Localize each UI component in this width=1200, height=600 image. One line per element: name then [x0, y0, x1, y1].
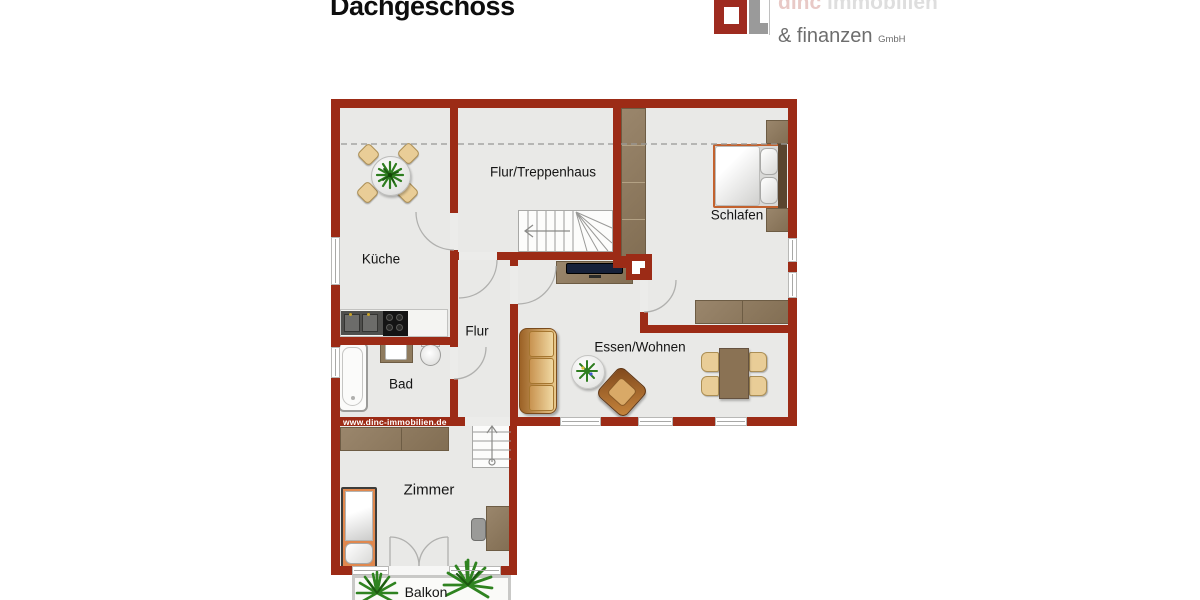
- room-label-balkon: Balkon: [405, 584, 448, 600]
- wall: [673, 417, 715, 426]
- wardrobe-divider: [622, 219, 645, 220]
- sofa-cushion: [529, 385, 554, 411]
- bed-pillow: [760, 177, 778, 204]
- wall: [340, 566, 352, 575]
- wall: [501, 566, 517, 575]
- tv-stand: [589, 275, 601, 278]
- page-title: Dachgeschoss: [330, 0, 515, 20]
- logo-finanzen: & finanzen: [778, 25, 873, 47]
- logo-line2: & finanzen GmbH: [778, 25, 906, 48]
- window: [331, 347, 340, 378]
- wall: [613, 108, 621, 258]
- stairs-treppenhaus: [518, 210, 613, 252]
- bed-single-pillow: [345, 543, 373, 564]
- room-label-schlafen: Schlafen: [711, 208, 764, 223]
- logo-gmbh: GmbH: [878, 34, 905, 45]
- stove-burner: [396, 324, 403, 331]
- sink-basin: [344, 314, 360, 332]
- wall: [497, 252, 621, 260]
- wall: [788, 262, 797, 272]
- logo-mark-gray-l-foot: [749, 23, 768, 34]
- bed-single-mattress: [345, 491, 373, 541]
- balcony-door-opening: [389, 566, 449, 575]
- wall: [601, 417, 638, 426]
- sofa-cushion: [529, 331, 554, 357]
- logo-mark-counter: [724, 7, 739, 24]
- window: [715, 417, 747, 426]
- wall: [510, 417, 560, 426]
- floorplan-canvas: Dachgeschoss dinc immobilien & finanzen …: [0, 0, 1200, 600]
- room-label-flur: Flur: [465, 324, 488, 339]
- armchair-seat: [606, 376, 637, 407]
- bathtub-drain: [351, 396, 355, 400]
- stove-burner: [396, 314, 403, 321]
- wall: [340, 337, 458, 345]
- door-opening: [640, 280, 648, 312]
- room-label-bad: Bad: [389, 377, 413, 392]
- room-label-essen-wohnen: Essen/Wohnen: [594, 340, 685, 355]
- door-opening: [450, 213, 458, 250]
- wall: [331, 99, 797, 108]
- window: [352, 566, 389, 575]
- sofa-cushion: [529, 358, 554, 384]
- stairwell-opening: [465, 417, 510, 426]
- room-label-kueche: Küche: [362, 252, 400, 267]
- desk: [486, 506, 511, 551]
- desk-chair: [471, 518, 486, 541]
- lowboard-divider: [742, 301, 743, 323]
- wall: [640, 325, 797, 333]
- wardrobe-divider: [401, 428, 402, 450]
- dining-chair: [749, 352, 767, 372]
- stove-burner: [386, 314, 393, 321]
- wall: [640, 268, 648, 280]
- bed-pillow: [760, 148, 778, 175]
- wardrobe: [621, 108, 646, 258]
- sink-faucet: [349, 313, 352, 316]
- stairs-zimmer: [472, 423, 512, 468]
- room-label-flur-treppenhaus: Flur/Treppenhaus: [490, 165, 596, 180]
- logo-brand-rest: immobilien: [821, 0, 938, 14]
- window: [788, 272, 797, 298]
- dining-chair: [749, 376, 767, 396]
- door-opening: [510, 266, 518, 304]
- company-logo: dinc immobilien & finanzen GmbH: [700, 0, 930, 50]
- wall: [510, 304, 518, 417]
- dining-table: [719, 348, 749, 399]
- watermark: www.dinc-immobilien.de: [343, 417, 447, 427]
- dining-chair: [701, 376, 719, 396]
- coffee-table: [571, 355, 605, 389]
- wall: [788, 108, 797, 238]
- kitchen-table: [371, 156, 411, 196]
- window: [788, 238, 797, 262]
- wall: [450, 108, 458, 213]
- door-opening: [459, 252, 497, 260]
- logo-brand: dinc: [778, 0, 821, 14]
- wall: [788, 298, 797, 417]
- wall: [509, 426, 517, 575]
- wall: [613, 256, 627, 268]
- wall: [450, 252, 459, 260]
- toilet: [420, 344, 441, 366]
- logo-divider: [769, 0, 770, 35]
- sink-faucet: [367, 313, 370, 316]
- wardrobe-divider: [622, 182, 645, 183]
- window: [560, 417, 601, 426]
- wall: [450, 250, 458, 347]
- wall: [747, 417, 797, 426]
- nightstand: [766, 120, 789, 144]
- stove-burner: [386, 324, 393, 331]
- bed-duvet: [715, 146, 760, 206]
- sink-basin: [362, 314, 378, 332]
- room-label-zimmer: Zimmer: [404, 482, 455, 499]
- wall: [450, 379, 458, 417]
- bed-headboard: [778, 144, 787, 208]
- nightstand: [766, 208, 789, 232]
- door-opening: [450, 347, 458, 379]
- wall: [331, 99, 340, 575]
- wardrobe: [340, 427, 449, 451]
- dining-chair: [701, 352, 719, 372]
- logo-line1: dinc immobilien: [778, 0, 938, 15]
- window: [331, 237, 340, 285]
- window: [449, 566, 501, 575]
- window: [638, 417, 673, 426]
- wardrobe-divider: [622, 145, 645, 146]
